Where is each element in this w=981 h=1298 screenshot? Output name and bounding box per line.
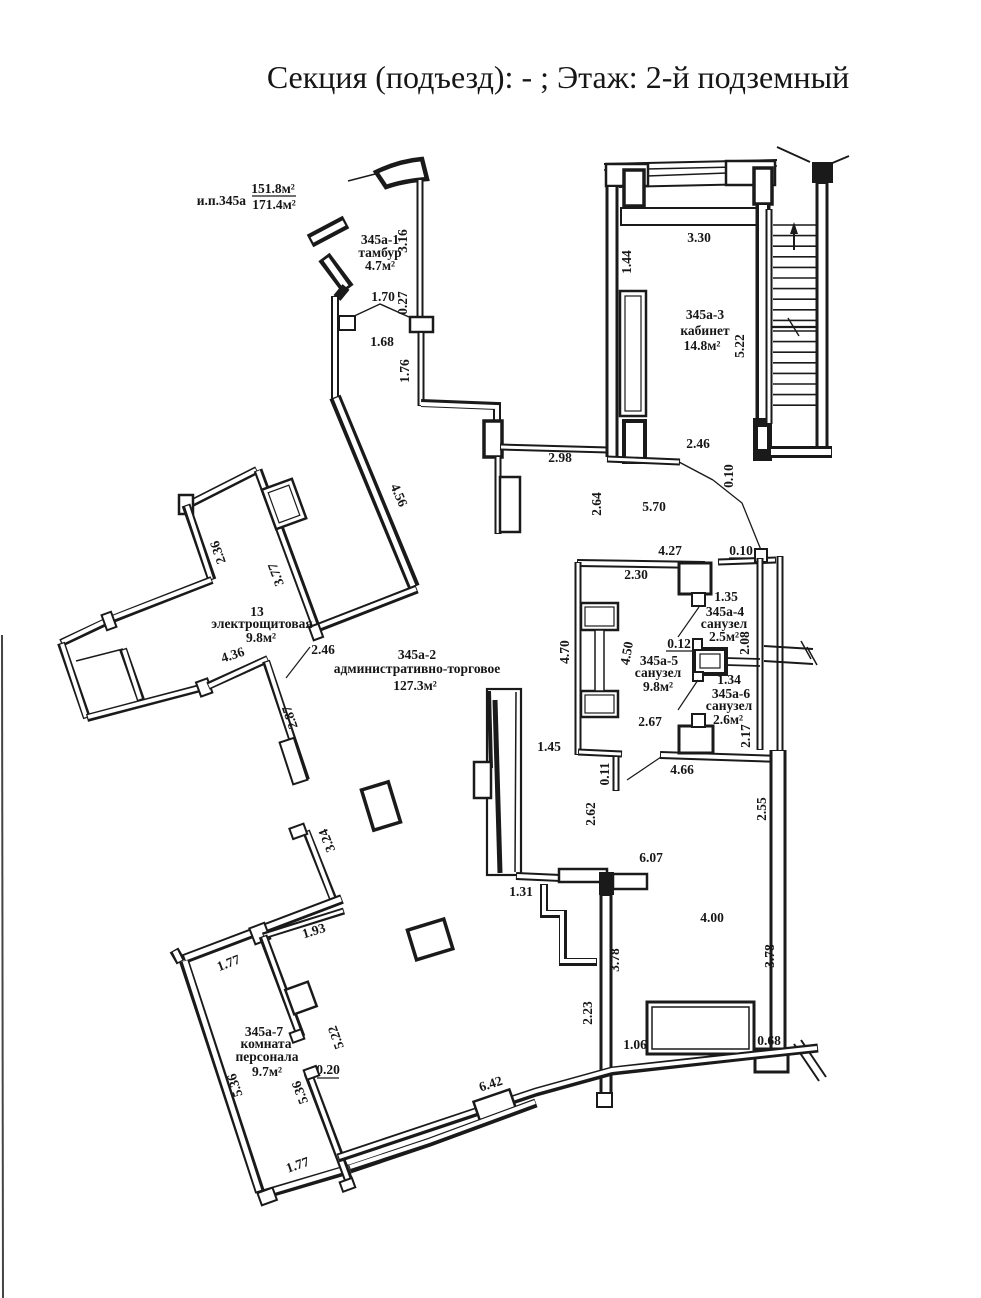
svg-text:электрощитовая: электрощитовая [211, 616, 312, 631]
svg-text:административно-торговое: административно-торговое [334, 661, 500, 676]
svg-text:2.30: 2.30 [624, 567, 648, 582]
svg-text:2.46: 2.46 [686, 436, 710, 451]
svg-text:4.7м²: 4.7м² [365, 258, 395, 273]
svg-text:2.08: 2.08 [737, 631, 752, 655]
svg-text:1.45: 1.45 [537, 739, 561, 754]
svg-text:1.34: 1.34 [717, 672, 741, 687]
svg-text:2.5м²: 2.5м² [709, 629, 739, 644]
svg-text:4.66: 4.66 [670, 762, 694, 777]
svg-text:3.78: 3.78 [762, 944, 777, 968]
svg-text:2.46: 2.46 [311, 642, 335, 657]
svg-text:4.00: 4.00 [700, 910, 724, 925]
svg-text:345а-2: 345а-2 [398, 647, 436, 662]
svg-text:1.70: 1.70 [371, 289, 395, 304]
svg-text:санузел: санузел [635, 665, 682, 680]
svg-text:151.8м²: 151.8м² [251, 181, 295, 196]
svg-text:9.8м²: 9.8м² [246, 630, 276, 645]
svg-text:0.27: 0.27 [395, 291, 410, 315]
svg-text:2.23: 2.23 [580, 1001, 595, 1025]
svg-text:4.27: 4.27 [658, 543, 682, 558]
svg-text:2.67: 2.67 [638, 714, 662, 729]
svg-text:кабинет: кабинет [680, 323, 730, 338]
svg-text:9.8м²: 9.8м² [643, 679, 673, 694]
svg-text:4.70: 4.70 [557, 640, 572, 664]
svg-text:2.62: 2.62 [583, 802, 598, 826]
svg-text:3.30: 3.30 [687, 230, 711, 245]
svg-text:127.3м²: 127.3м² [393, 678, 437, 693]
svg-text:санузел: санузел [706, 698, 753, 713]
svg-text:3.78: 3.78 [607, 948, 622, 972]
svg-text:1.44: 1.44 [619, 250, 634, 274]
svg-text:5.70: 5.70 [642, 499, 666, 514]
svg-text:0.11: 0.11 [597, 762, 612, 785]
svg-text:и.п.345а: и.п.345а [197, 193, 247, 208]
svg-text:1.76: 1.76 [397, 359, 412, 383]
svg-text:6.07: 6.07 [639, 850, 663, 865]
svg-text:Секция (подъезд): - ; Этаж: 2-: Секция (подъезд): - ; Этаж: 2-й подземны… [267, 59, 849, 95]
svg-text:1.35: 1.35 [714, 589, 738, 604]
svg-text:1.31: 1.31 [509, 884, 533, 899]
svg-text:1.68: 1.68 [370, 334, 394, 349]
svg-text:0.68: 0.68 [757, 1033, 781, 1048]
svg-text:171.4м²: 171.4м² [252, 197, 296, 212]
svg-text:2.55: 2.55 [754, 797, 769, 821]
svg-text:14.8м²: 14.8м² [684, 338, 721, 353]
svg-text:0.10: 0.10 [721, 464, 736, 488]
svg-text:3.16: 3.16 [395, 229, 410, 253]
svg-text:9.7м²: 9.7м² [252, 1064, 282, 1079]
svg-text:345а-3: 345а-3 [686, 307, 724, 322]
svg-text:5.22: 5.22 [732, 334, 747, 358]
svg-text:2.64: 2.64 [589, 492, 604, 516]
svg-text:2.98: 2.98 [548, 450, 572, 465]
svg-text:2.17: 2.17 [738, 724, 753, 748]
svg-text:1.06: 1.06 [623, 1037, 647, 1052]
svg-text:персонала: персонала [236, 1049, 299, 1064]
svg-text:0.10: 0.10 [729, 543, 753, 558]
svg-text:0.12: 0.12 [667, 636, 691, 651]
